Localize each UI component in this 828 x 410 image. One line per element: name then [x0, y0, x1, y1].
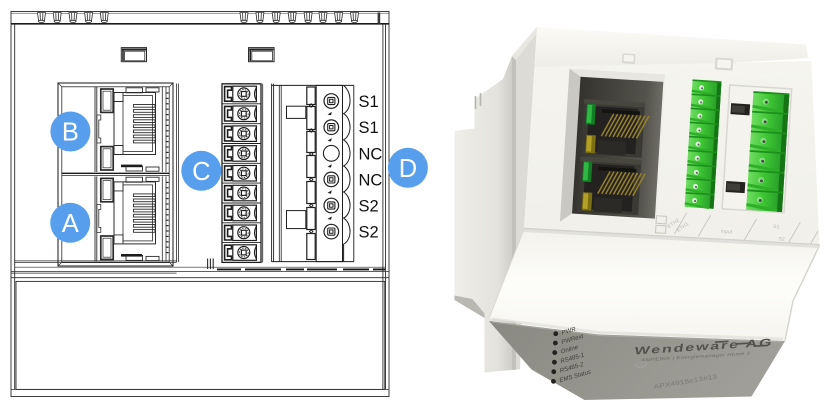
svg-text:S2: S2: [359, 224, 379, 242]
svg-text:C: C: [192, 158, 210, 186]
svg-text:NC: NC: [359, 171, 383, 189]
svg-text:S1: S1: [773, 224, 780, 230]
svg-text:B: B: [62, 119, 79, 147]
svg-text:S1: S1: [359, 119, 379, 137]
svg-text:S2: S2: [359, 198, 379, 216]
svg-text:Input: Input: [720, 229, 732, 236]
svg-text:NC: NC: [359, 145, 383, 163]
svg-text:S2: S2: [778, 236, 785, 242]
svg-text:S1: S1: [359, 93, 379, 111]
svg-text:A: A: [62, 210, 79, 238]
svg-text:D: D: [399, 155, 417, 183]
